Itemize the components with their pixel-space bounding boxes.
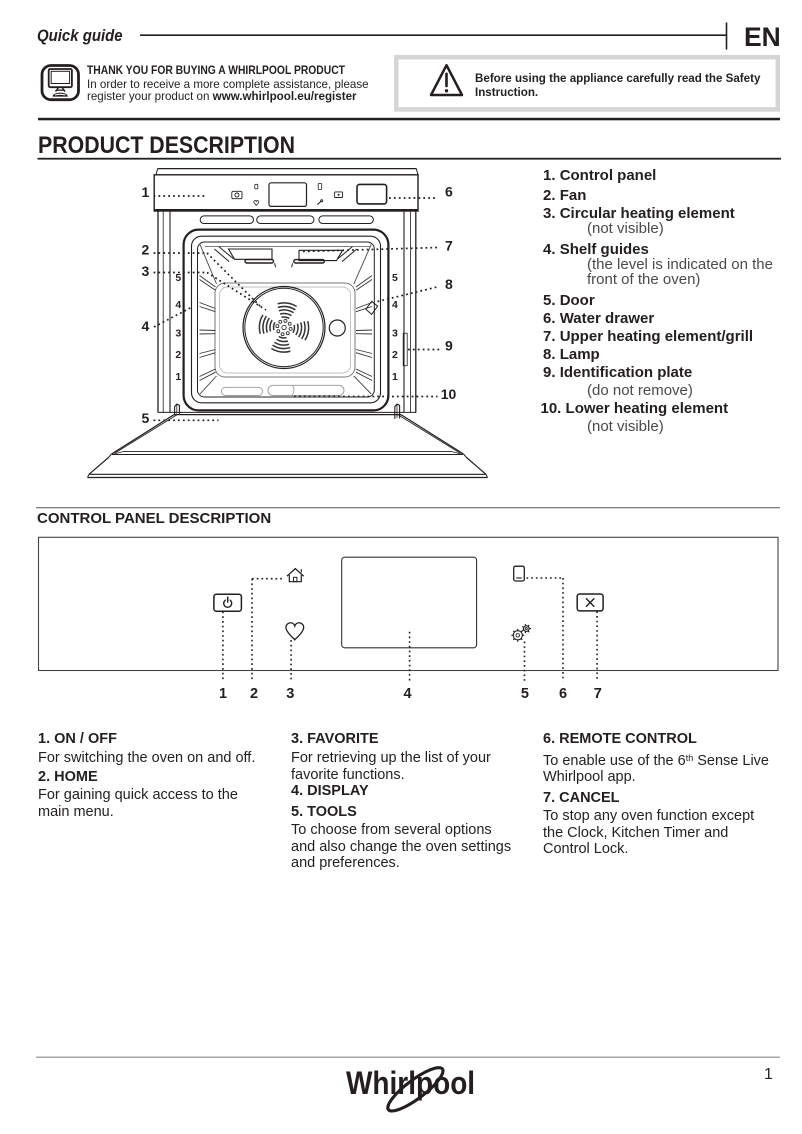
svg-text:3: 3 <box>392 327 398 339</box>
svg-text:1: 1 <box>142 184 150 200</box>
svg-text:4: 4 <box>175 299 181 311</box>
svg-text:4: 4 <box>404 686 412 702</box>
svg-text:4: 4 <box>142 318 150 334</box>
svg-text:5: 5 <box>521 686 529 702</box>
svg-text:2: 2 <box>142 241 150 257</box>
svg-text:3: 3 <box>286 686 294 702</box>
svg-text:5: 5 <box>392 272 398 284</box>
svg-text:9: 9 <box>445 338 453 354</box>
svg-text:5: 5 <box>142 410 150 426</box>
svg-text:1: 1 <box>219 686 227 702</box>
svg-text:10: 10 <box>441 386 457 402</box>
svg-text:2: 2 <box>250 686 258 702</box>
svg-text:6: 6 <box>559 686 567 702</box>
svg-text:7: 7 <box>594 686 602 702</box>
svg-text:2: 2 <box>175 349 181 361</box>
svg-text:6: 6 <box>445 184 453 200</box>
svg-text:3: 3 <box>142 263 150 279</box>
svg-text:7: 7 <box>445 238 453 254</box>
svg-text:3: 3 <box>175 327 181 339</box>
svg-text:5: 5 <box>175 272 181 284</box>
svg-text:8: 8 <box>445 276 453 292</box>
svg-text:4: 4 <box>392 299 398 311</box>
svg-text:1: 1 <box>175 371 181 383</box>
svg-text:2: 2 <box>392 349 398 361</box>
svg-text:1: 1 <box>392 371 398 383</box>
